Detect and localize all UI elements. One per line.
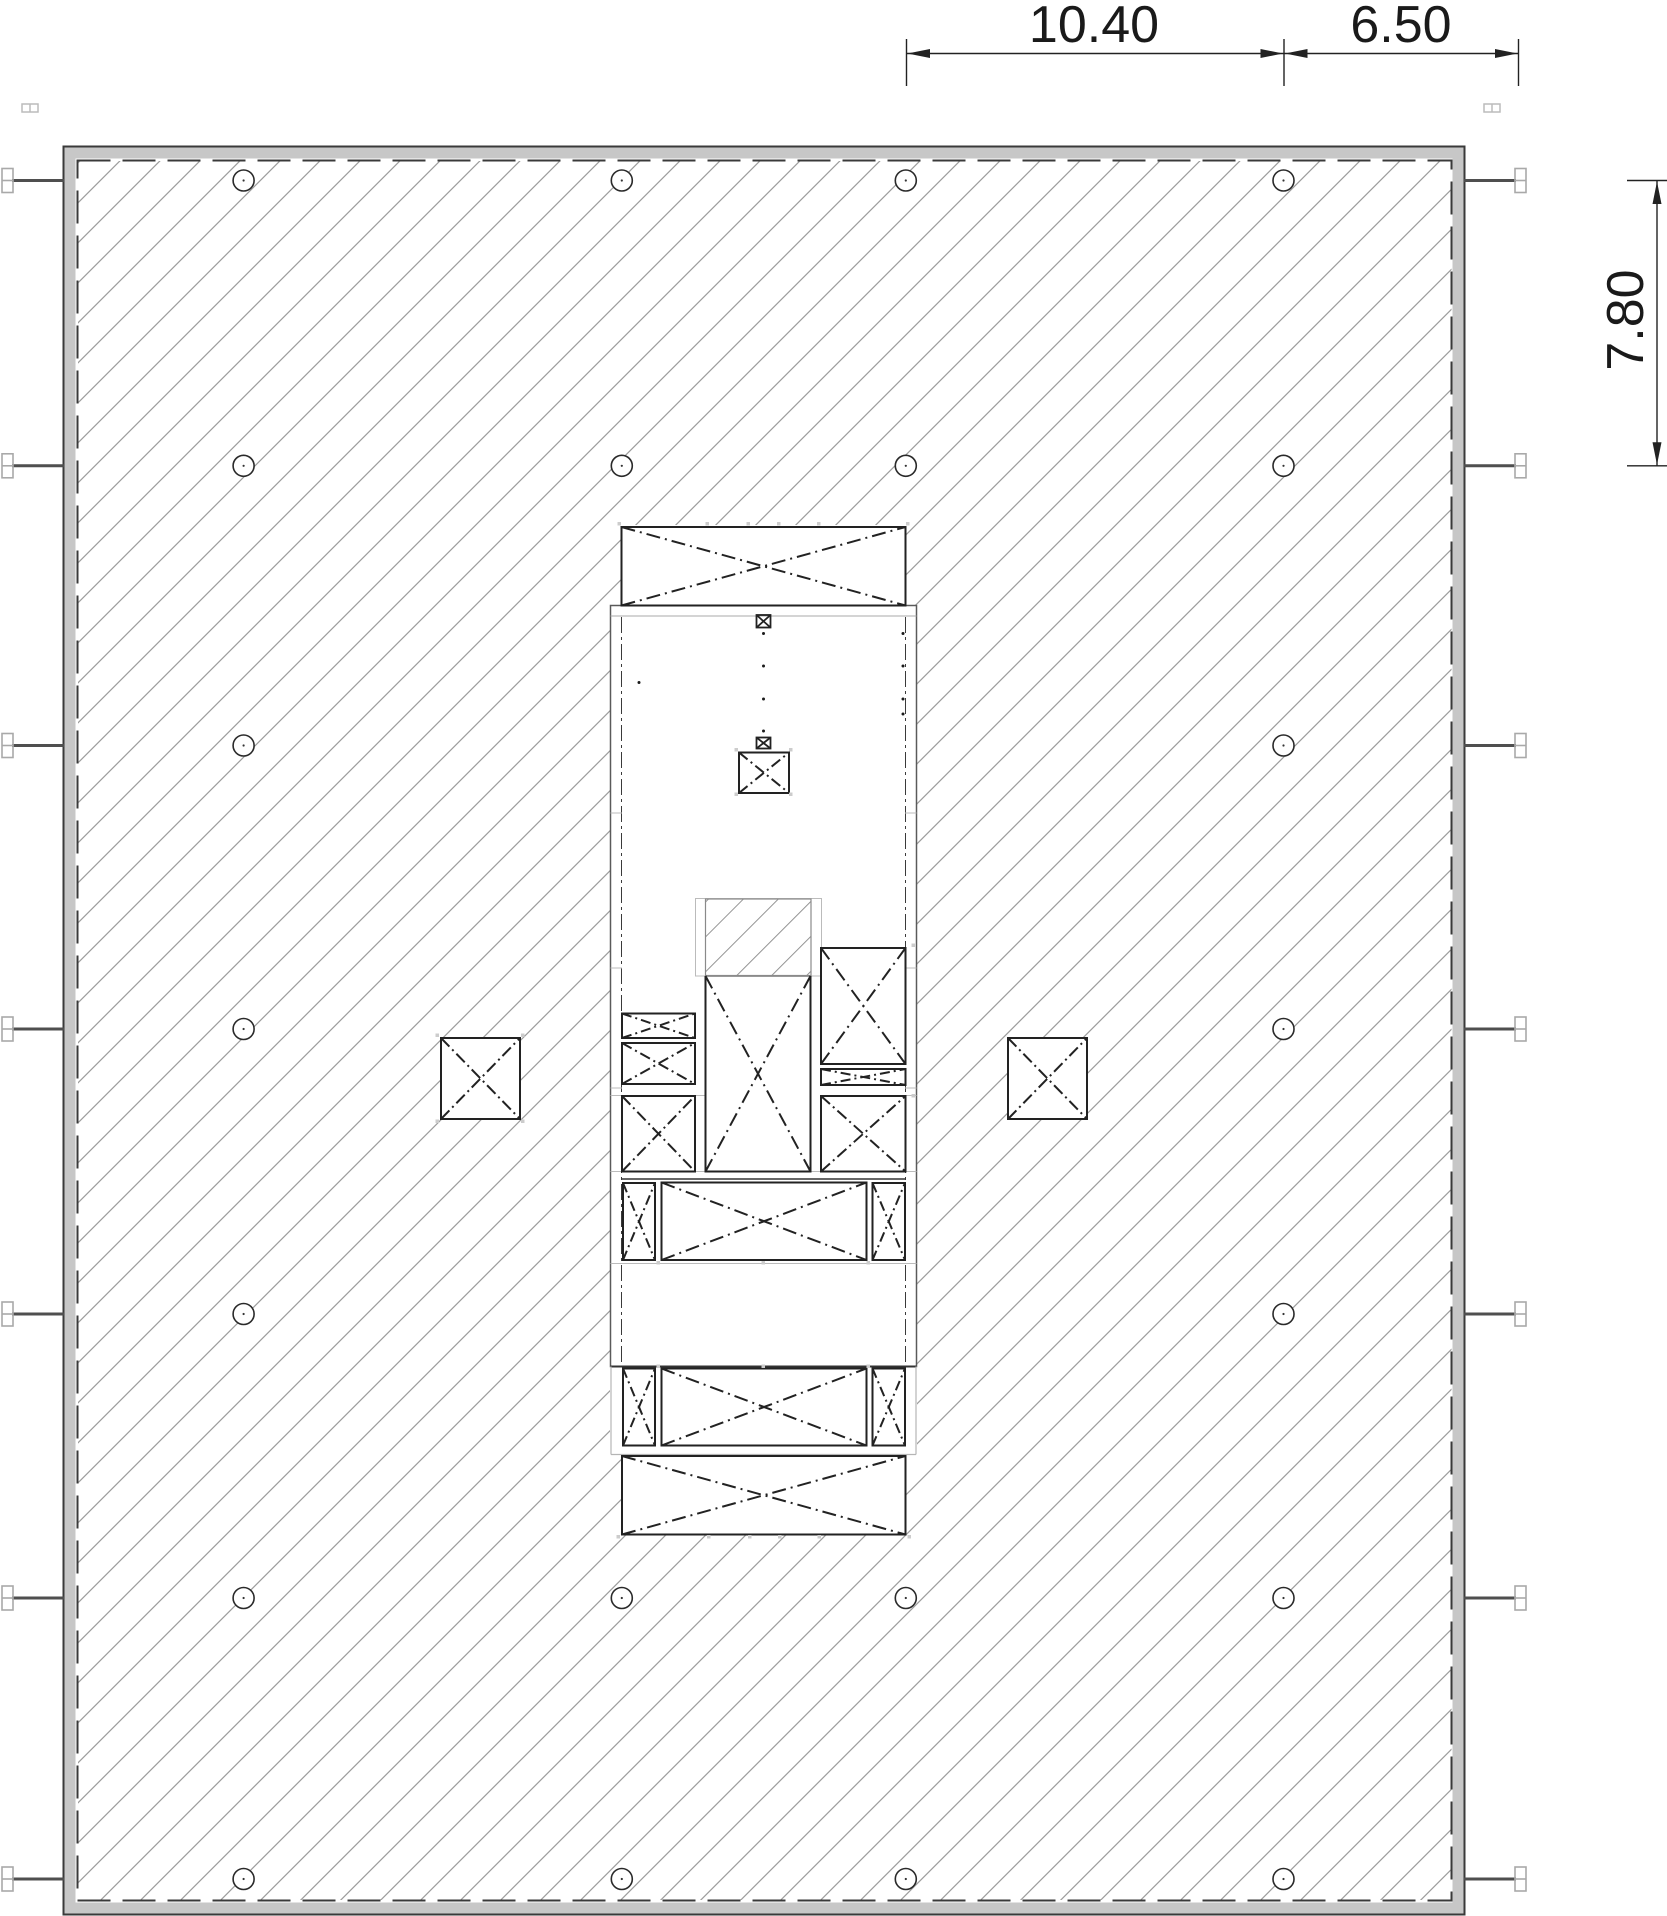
svg-text:7.80: 7.80 <box>1597 269 1655 370</box>
svg-text:10.40: 10.40 <box>1029 0 1159 54</box>
svg-text:6.50: 6.50 <box>1350 0 1451 54</box>
